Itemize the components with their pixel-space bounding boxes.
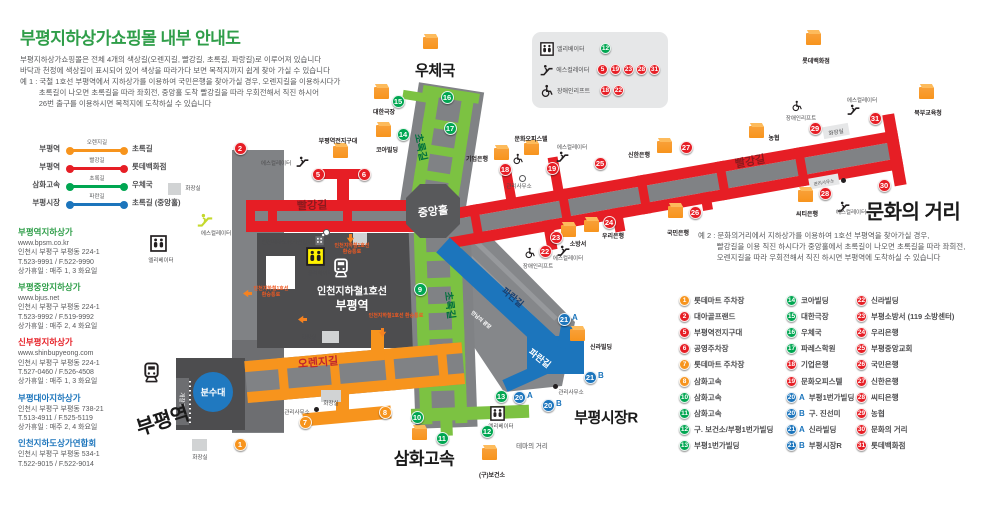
map-small-label: 인천지하도상가연합회: [262, 238, 313, 246]
directory-label: 부평1번가빌딩: [809, 392, 855, 403]
map-description: 부평지하상가쇼핑몰은 전체 4개의 색상길(오렌지길, 빨강길, 초록길, 파랑…: [20, 54, 340, 109]
map-dot: [519, 175, 526, 182]
directory-label: 신라빌딩: [809, 424, 837, 435]
directory-row: 20B구. 진선미: [786, 405, 854, 421]
arrow-left-icon: [298, 315, 307, 324]
exit-marker: 13: [495, 390, 508, 403]
building-label: 우리은행: [602, 231, 624, 240]
directory-label: 문화의 거리: [871, 424, 908, 435]
example2-line: 빨강길을 이용 직진 하시다가 중앙홀에서 초록길이 나오면 초록길을 따라 좌…: [698, 241, 965, 252]
exit-badge: 19: [610, 64, 621, 75]
arrow-left-icon: [243, 289, 252, 298]
contact-name: 부평대아지하상가: [18, 392, 158, 404]
building-label: 신라빌딩: [590, 342, 612, 351]
directory-exit-badge: 20: [786, 392, 797, 403]
directory-exit-badge: 19: [786, 376, 797, 387]
building-marker: [333, 146, 348, 158]
arrow-down-icon: [378, 328, 387, 337]
facility-label: 에스컬레이터: [556, 65, 594, 74]
directory-column: 22신라빌딩23부평소방서 (119 소방센터)24우리은행25부평중앙교회26…: [856, 292, 954, 454]
directory-label: 삼화고속: [694, 392, 722, 403]
directory-label: 롯데백화점: [871, 440, 906, 451]
restroom-box: [322, 331, 339, 343]
route-from-label: 부평시장: [12, 197, 60, 208]
wheelchair-icon: [540, 84, 554, 98]
directory-row: 27신한은행: [856, 373, 954, 389]
directory-exit-badge: 26: [856, 359, 867, 370]
directory-exit-suffix: B: [799, 441, 805, 450]
road-name-label: 중앙홀: [417, 201, 449, 220]
exit-marker: 2: [234, 142, 247, 155]
exit-badge: 31: [649, 64, 660, 75]
map-small-label: 화장실: [301, 333, 316, 341]
directory-exit-badge: 21: [786, 424, 797, 435]
transfer-passage-label: 인천지하철1호선환승통로: [254, 286, 289, 298]
contact-line: T.527-0460 / F.526-4508: [18, 368, 158, 377]
map-small-label: 엘리베이터: [307, 269, 332, 277]
wheelchair-icon: [512, 153, 524, 165]
route-legend-row: 부평시장파란길초록길 (중앙홀): [12, 192, 212, 210]
map-small-label: 에스컬레이터: [261, 159, 291, 167]
building-label: (구)보건소: [479, 470, 505, 479]
directory-exit-badge: 8: [679, 376, 690, 387]
exit-marker: 19: [546, 162, 559, 175]
train-white-icon: [331, 258, 351, 278]
route-line: [70, 149, 124, 152]
building-marker: [376, 125, 391, 137]
directory-exit-badge: 23: [856, 311, 867, 322]
directory-row: 24우리은행: [856, 324, 954, 340]
contact-line: www.bpsm.co.kr: [18, 239, 158, 248]
road-name-label: 빨강길: [297, 196, 328, 213]
directory-label: 기업은행: [801, 359, 829, 370]
exit-marker: 11: [436, 432, 449, 445]
place-name-label: 문화의 거리: [866, 196, 961, 225]
exit-marker: 24: [603, 216, 616, 229]
route-line: [70, 203, 124, 206]
facility-label: 엘리베이터: [557, 44, 597, 53]
directory-row: 28씨티은행: [856, 389, 954, 405]
route-legend-row: 부평역빨강길롯데백화점: [12, 156, 212, 174]
contact-line: 인천시 부평구 부평동 224-1: [18, 303, 158, 312]
place-name-label: 삼화고속: [394, 445, 455, 470]
facility-label: 장애인리프트: [557, 86, 597, 95]
road-name-label: 초록길: [442, 290, 460, 319]
exit-marker: 9: [414, 283, 427, 296]
building-marker: [482, 448, 497, 460]
contact-name: 인천지하도상가연합회: [18, 437, 158, 449]
directory-label: 코아빌딩: [801, 295, 829, 306]
building-marker: [584, 220, 599, 232]
directory-row: 14코아빌딩: [786, 292, 854, 308]
exit-marker: 18: [499, 163, 512, 176]
contact-name: 부평역지하상가: [18, 226, 158, 238]
directory-label: 공영주차장: [694, 343, 729, 354]
contact-block: 인천지하도상가연합회인천시 부평구 부평동 534-1T.522-9015 / …: [18, 437, 158, 469]
directory-row: 21A신라빌딩: [786, 422, 854, 438]
directory-exit-badge: 22: [856, 295, 867, 306]
contact-block: 부평중앙지하상가www.bjus.net인천시 부평구 부평동 224-1T.5…: [18, 281, 158, 331]
directory-label: 신라빌딩: [871, 295, 899, 306]
facility-legend-row: 장애인리프트1822: [540, 80, 660, 101]
transfer-line: 환승통로: [254, 292, 289, 298]
directory-column: 14코아빌딩15대한극장16우체국17파레스학원18기업은행19문화오피스텔20…: [786, 292, 854, 454]
directory-label: 신한은행: [871, 376, 899, 387]
map-small-label: 장애인리프트: [523, 262, 553, 270]
map-small-label: 관리사무소: [506, 182, 531, 190]
building-icon: [313, 233, 326, 246]
exit-badge: 28: [636, 64, 647, 75]
exit-marker: 8: [379, 406, 392, 419]
directory-exit-badge: 14: [786, 295, 797, 306]
restroom-box: [192, 439, 207, 451]
route-legend-row: 삼화고속초록길우체국: [12, 174, 212, 192]
exit-marker: 20: [513, 391, 526, 404]
exit-marker: 29: [809, 122, 822, 135]
building-marker: [798, 190, 813, 202]
transfer-passage-label: 인천지하철1호선 환승통로: [369, 313, 424, 319]
train-icon: [141, 362, 162, 383]
directory-label: 롯데마트 주차장: [694, 359, 744, 370]
map-small-label: 에스컬레이터: [201, 229, 231, 237]
directory-row: 16우체국: [786, 324, 854, 340]
wheelchair-icon: [524, 247, 536, 259]
building-label: 부평역전지구대: [319, 136, 358, 145]
building-marker: [657, 141, 672, 153]
exit-marker: 31: [869, 112, 882, 125]
directory-row: 2대아골프랜드: [679, 308, 773, 324]
building-label: 롯데백화점: [802, 56, 830, 65]
directory-row: 7롯데마트 주차장: [679, 357, 773, 373]
facility-legend: 엘리베이터12에스컬레이터519232831장애인리프트1822: [532, 32, 668, 108]
building-marker: [749, 126, 764, 138]
route-legend: 부평역오렌지길초록길부평역빨강길롯데백화점삼화고속초록길우체국부평시장파란길초록…: [12, 138, 212, 210]
exit-badge: 22: [613, 85, 624, 96]
route-to-label: 롯데백화점: [132, 161, 167, 172]
contact-line: 인천시 부평구 부평동 224-1: [18, 359, 158, 368]
exit-marker: 10: [411, 411, 424, 424]
directory-exit-badge: 6: [679, 343, 690, 354]
escalator-icon: [556, 150, 569, 163]
contact-name: 부평중앙지하상가: [18, 281, 158, 293]
route-legend-row: 부평역오렌지길초록길: [12, 138, 212, 156]
directory-row: 10삼화고속: [679, 389, 773, 405]
exit-marker: 26: [689, 206, 702, 219]
facility-exit-numbers: 12: [600, 43, 611, 54]
directory-exit-badge: 17: [786, 343, 797, 354]
exit-marker: 30: [878, 179, 891, 192]
directory-row: 18기업은행: [786, 357, 854, 373]
map-small-label: 관리사무소: [284, 408, 309, 416]
exit-marker: 5: [312, 168, 325, 181]
contact-block: 부평역지하상가www.bpsm.co.kr인천시 부평구 부평동 224-1T.…: [18, 226, 158, 276]
directory-row: 5부평역전지구대: [679, 324, 773, 340]
directory-exit-badge: 21: [786, 440, 797, 451]
route-to-label: 초록길: [132, 143, 153, 154]
exit-marker: 25: [594, 157, 607, 170]
contact-block: 신부평지하상가www.shinbupyeong.com인천시 부평구 부평동 2…: [18, 336, 158, 386]
description-line: 26번 출구를 이용하시면 목적지에 도착하실 수 있습니다: [20, 98, 340, 109]
building-marker: [423, 37, 438, 49]
directory-exit-badge: 30: [856, 424, 867, 435]
map-small-label: 화장실: [185, 184, 200, 192]
route-from-label: 부평역: [12, 161, 60, 172]
directory-label: 부평역전지구대: [694, 327, 742, 338]
exit-marker-suffix: B: [598, 371, 604, 380]
building-marker: [494, 148, 509, 160]
directory-label: 삼화고속: [694, 376, 722, 387]
directory-exit-badge: 7: [679, 359, 690, 370]
map-small-label: 에스컬레이터: [847, 96, 877, 104]
map-small-label: 에스컬레이터: [553, 254, 583, 262]
building-marker: [524, 143, 539, 155]
building-label: 문화오피스텔: [514, 134, 547, 143]
exit-marker: 16: [441, 91, 454, 104]
directory-label: 국민은행: [871, 359, 899, 370]
directory-row: 31롯데백화점: [856, 438, 954, 454]
exit-marker: 14: [397, 128, 410, 141]
elevator-icon: [540, 42, 554, 56]
directory-exit-badge: 15: [786, 311, 797, 322]
route-road-label: 파란길: [68, 192, 126, 200]
map-small-label: 에스컬레이터: [836, 208, 866, 216]
directory-exit-badge: 13: [679, 440, 690, 451]
directory-exit-badge: 24: [856, 327, 867, 338]
route-road-label: 초록길: [68, 174, 126, 182]
building-label: 국민은행: [667, 228, 689, 237]
directory-exit-suffix: A: [799, 425, 805, 434]
building-marker: [919, 87, 934, 99]
directory-label: 씨티은행: [871, 392, 899, 403]
contact-line: T.523-9991 / F.522-9990: [18, 258, 158, 267]
directory-label: 부평중앙교회: [871, 343, 912, 354]
exit-marker: 1: [234, 438, 247, 451]
building-marker: [374, 87, 389, 99]
directory-label: 롯데마트 주차장: [694, 295, 744, 306]
elevator-icon: [490, 406, 505, 421]
place-name-label: 우체국: [415, 60, 455, 81]
exit-marker: 23: [550, 231, 563, 244]
building-marker: [412, 428, 427, 440]
route-from-label: 삼화고속: [12, 179, 60, 190]
map-small-label: 장애인리프트: [786, 114, 816, 122]
escalator-icon: [847, 103, 860, 116]
exit-badge: 18: [600, 85, 611, 96]
exit-marker: 6: [358, 168, 371, 181]
exit-marker: 22: [539, 245, 552, 258]
directory-row: 15대한극장: [786, 308, 854, 324]
directory-row: 29농협: [856, 405, 954, 421]
description-line: 예 1 : 국철 1호선 부평역에서 지하상가를 이용하여 국민은행을 찾아가실…: [20, 76, 340, 87]
building-label: 기업은행: [466, 154, 488, 163]
directory-exit-badge: 12: [679, 424, 690, 435]
building-label: 농협: [768, 133, 779, 142]
directory-exit-badge: 31: [856, 440, 867, 451]
arrow-down-icon: [346, 234, 355, 243]
contact-line: T.523-9992 / F.519-9992: [18, 313, 158, 322]
directory-exit-badge: 2: [679, 311, 690, 322]
contact-line: www.bjus.net: [18, 294, 158, 303]
exit-marker: 21: [558, 313, 571, 326]
exit-marker-suffix: A: [527, 391, 533, 400]
building-marker: [668, 206, 683, 218]
transfer-line: 인천지하철1호선 환승통로: [369, 313, 424, 319]
directory-row: 26국민은행: [856, 357, 954, 373]
directory-row: 8삼화고속: [679, 373, 773, 389]
directory-row: 6공영주차장: [679, 341, 773, 357]
directory-row: 25부평중앙교회: [856, 341, 954, 357]
example2-text: 예 2 : 문화의거리에서 지하상가를 이용하여 1호선 부평역을 찾아가실 경…: [698, 230, 965, 263]
directory-label: 대아골프랜드: [694, 311, 735, 322]
directory-exit-badge: 16: [786, 327, 797, 338]
exit-marker: 17: [444, 122, 457, 135]
directory-exit-suffix: A: [799, 393, 805, 402]
map-dot: [553, 384, 558, 389]
map-small-label: 관리사무소: [558, 388, 583, 396]
directory-label: 파레스학원: [801, 343, 836, 354]
map-small-label: 에스컬레이터: [557, 143, 587, 151]
page-title: 부평지하상가쇼핑몰 내부 안내도: [20, 24, 240, 49]
facility-exit-numbers: 1822: [600, 85, 624, 96]
building-label: 씨티은행: [796, 209, 818, 218]
directory-row: 11삼화고속: [679, 405, 773, 421]
exit-badge: 12: [600, 43, 611, 54]
map-small-label: 엘리베이터: [148, 256, 173, 264]
directory-exit-badge: 1: [679, 295, 690, 306]
escalator-yellow-icon: [197, 212, 213, 228]
contact-name: 신부평지하상가: [18, 336, 158, 348]
directory-label: 우리은행: [871, 327, 899, 338]
directory-exit-badge: 10: [679, 392, 690, 403]
directory-label: 농협: [871, 408, 885, 419]
building-marker: [806, 33, 821, 45]
directory-label: 구. 진선미: [809, 408, 841, 419]
directory-exit-suffix: B: [799, 409, 805, 418]
exit-marker: 21: [584, 371, 597, 384]
building-label: 신한은행: [628, 150, 650, 159]
building-marker: [570, 329, 585, 341]
elevator-yellow-icon: [306, 247, 325, 266]
contact-line: 상가휴일 : 매주 2, 4 화요일: [18, 322, 158, 331]
directory-label: 문화오피스텔: [801, 376, 842, 387]
contact-line: www.shinbupyeong.com: [18, 349, 158, 358]
route-from-label: 부평역: [12, 143, 60, 154]
exit-badge: 5: [597, 64, 608, 75]
directory-row: 22신라빌딩: [856, 292, 954, 308]
directory-label: 부평1번가빌딩: [694, 440, 740, 451]
contact-line: T.522-9015 / F.522-9014: [18, 460, 158, 469]
directory-exit-badge: 25: [856, 343, 867, 354]
route-road-label: 빨강길: [68, 156, 126, 164]
building-label: 소방서: [570, 239, 587, 248]
directory-row: 12구. 보건소/부평1번가빌딩: [679, 422, 773, 438]
directory-column: 1롯데마트 주차장2대아골프랜드5부평역전지구대6공영주차장7롯데마트 주차장8…: [679, 292, 773, 454]
exit-marker: 27: [680, 141, 693, 154]
exit-marker: 28: [819, 187, 832, 200]
building-label: 대한극장: [373, 107, 395, 116]
facility-legend-row: 엘리베이터12: [540, 38, 660, 59]
escalator-icon: [540, 63, 553, 77]
elevator-icon: [150, 235, 167, 252]
exit-marker: 7: [299, 416, 312, 429]
map-small-label: 화장실: [192, 453, 207, 461]
directory-exit-badge: 28: [856, 392, 867, 403]
contact-line: 인천시 부평구 부평동 534-1: [18, 450, 158, 459]
exit-marker-suffix: A: [572, 313, 578, 322]
directory-exit-badge: 11: [679, 408, 690, 419]
map-small-label: 화장실: [323, 399, 338, 407]
station-line-label: 인천지하철1호선: [317, 283, 387, 298]
contact-line: 인천시 부평구 부평동 224-1: [18, 248, 158, 257]
route-to-label: 초록길 (중앙홀): [132, 197, 180, 208]
wheelchair-icon: [791, 100, 803, 112]
escalator-icon: [296, 155, 309, 168]
directory-row: 23부평소방서 (119 소방센터): [856, 308, 954, 324]
example2-line: 예 2 : 문화의거리에서 지하상가를 이용하여 1호선 부평역을 찾아가실 경…: [698, 230, 965, 241]
directory-row: 19문화오피스텔: [786, 373, 854, 389]
directory-label: 우체국: [801, 327, 822, 338]
directory-label: 삼화고속: [694, 408, 722, 419]
directory-label: 부평시장R: [809, 440, 842, 451]
contact-line: 상가휴일 : 매주 1, 3 화요일: [18, 267, 158, 276]
exit-marker: 12: [481, 425, 494, 438]
fountain-label: 분수대: [201, 386, 226, 399]
route-line: [70, 167, 124, 170]
map-small-label: 테마의 거리: [516, 440, 548, 450]
route-to-label: 우체국: [132, 179, 153, 190]
building-label: 코아빌딩: [376, 145, 398, 154]
directory-row: 17파레스학원: [786, 341, 854, 357]
building-label: 북부교육청: [914, 108, 942, 117]
directory-exit-badge: 18: [786, 359, 797, 370]
route-line: [70, 185, 124, 188]
map-dot: [841, 178, 846, 183]
place-name-label: 부평시장R: [574, 407, 638, 428]
example2-line: 오렌지길을 따라 우회전해서 직진 하시면 부평역에 도착하실 수 있습니다: [698, 252, 965, 263]
facility-exit-numbers: 519232831: [597, 64, 660, 75]
facility-legend-row: 에스컬레이터519232831: [540, 59, 660, 80]
exit-badge: 23: [623, 64, 634, 75]
description-line: 바닥과 천정에 색상길이 표시되어 있어 색상을 따라가다 보면 목적지까지 쉽…: [20, 65, 340, 76]
directory-exit-badge: 20: [786, 408, 797, 419]
exit-marker: 15: [392, 95, 405, 108]
directory-row: 1롯데마트 주차장: [679, 292, 773, 308]
contact-list: 부평역지하상가www.bpsm.co.kr인천시 부평구 부평동 224-1T.…: [18, 226, 158, 474]
directory-label: 구. 보건소/부평1번가빌딩: [694, 424, 773, 435]
directory-row: 30문화의 거리: [856, 422, 954, 438]
directory-exit-badge: 29: [856, 408, 867, 419]
transfer-line: 환승통로: [335, 249, 370, 255]
directory-label: 부평소방서 (119 소방센터): [871, 311, 954, 322]
exit-marker-suffix: B: [556, 399, 562, 408]
transfer-passage-label: 인천지하철1호선환승통로: [335, 243, 370, 255]
route-road-label: 오렌지길: [68, 138, 126, 146]
description-line: 초록길이 나오면 초록길을 따라 좌회전, 중앙홀 도착 빨강길을 따라 우회전…: [20, 87, 340, 98]
directory-row: 21B부평시장R: [786, 438, 854, 454]
directory-label: 대한극장: [801, 311, 829, 322]
description-line: 부평지하상가쇼핑몰은 전체 4개의 색상길(오렌지길, 빨강길, 초록길, 파랑…: [20, 54, 340, 65]
map-dot: [314, 407, 319, 412]
exit-marker: 20: [542, 399, 555, 412]
directory-row: 13부평1번가빌딩: [679, 438, 773, 454]
station-name-label: 부평역: [335, 297, 368, 314]
directory-row: 20A부평1번가빌딩: [786, 389, 854, 405]
directory-exit-badge: 5: [679, 327, 690, 338]
building-marker: [561, 225, 576, 237]
bupyeong-mall-map-page: 부평지하상가쇼핑몰 내부 안내도 부평지하상가쇼핑몰은 전체 4개의 색상길(오…: [0, 0, 1000, 512]
contact-line: 상가휴일 : 매주 1, 3 화요일: [18, 377, 158, 386]
directory-exit-badge: 27: [856, 376, 867, 387]
